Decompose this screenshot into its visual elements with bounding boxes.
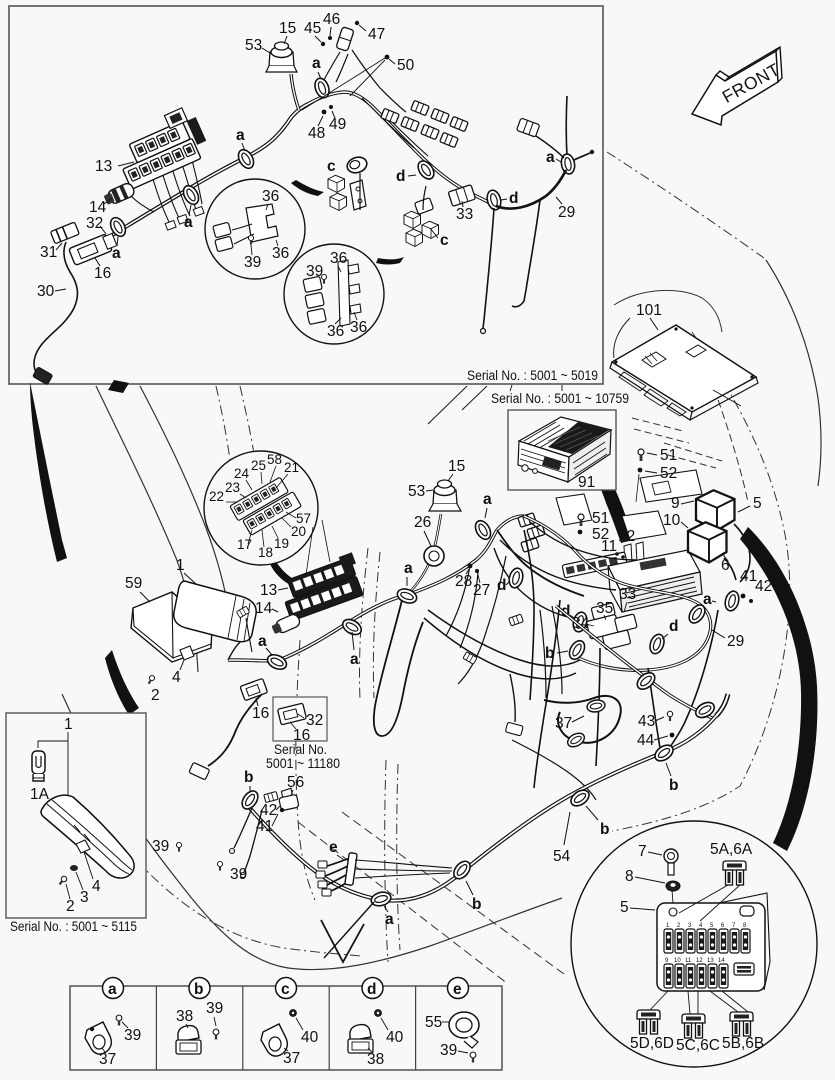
svg-text:b: b — [472, 896, 481, 913]
svg-text:50: 50 — [397, 57, 415, 74]
svg-text:5A,6A: 5A,6A — [710, 841, 753, 858]
svg-text:101: 101 — [636, 302, 662, 319]
svg-text:c: c — [327, 158, 336, 175]
svg-text:42: 42 — [755, 578, 772, 595]
svg-text:30: 30 — [37, 283, 55, 300]
svg-text:e: e — [329, 839, 338, 856]
svg-text:18: 18 — [258, 545, 273, 560]
svg-text:8: 8 — [625, 868, 634, 885]
svg-text:21: 21 — [284, 460, 299, 475]
svg-text:b: b — [669, 777, 678, 794]
svg-text:a: a — [385, 911, 394, 928]
svg-text:29: 29 — [558, 204, 575, 221]
svg-text:54: 54 — [553, 848, 571, 865]
svg-text:a: a — [112, 245, 121, 262]
svg-text:38: 38 — [367, 1051, 384, 1068]
svg-text:19: 19 — [274, 536, 289, 551]
svg-text:a: a — [236, 127, 245, 144]
svg-text:a: a — [546, 149, 555, 166]
svg-text:b: b — [600, 821, 609, 838]
svg-text:36: 36 — [262, 188, 279, 205]
svg-text:48: 48 — [308, 125, 325, 142]
svg-text:24: 24 — [234, 466, 250, 481]
svg-text:13: 13 — [260, 582, 277, 599]
svg-text:Serial No. : 5001 ~ 5115: Serial No. : 5001 ~ 5115 — [10, 919, 137, 934]
svg-text:15: 15 — [448, 458, 465, 475]
svg-text:d: d — [396, 168, 405, 185]
svg-text:14: 14 — [718, 958, 725, 964]
svg-text:b: b — [194, 981, 203, 998]
svg-text:38: 38 — [176, 1008, 193, 1025]
svg-text:a: a — [404, 560, 413, 577]
svg-text:b: b — [545, 645, 554, 662]
svg-text:c: c — [281, 981, 290, 998]
svg-text:7: 7 — [638, 843, 647, 860]
svg-text:c: c — [440, 232, 449, 249]
svg-text:13: 13 — [95, 158, 112, 175]
svg-text:56: 56 — [287, 774, 304, 791]
svg-text:32: 32 — [86, 215, 103, 232]
svg-text:20: 20 — [291, 524, 306, 539]
svg-text:44: 44 — [637, 732, 655, 749]
svg-text:36: 36 — [327, 323, 344, 340]
svg-text:45: 45 — [304, 20, 321, 37]
svg-text:5: 5 — [753, 495, 762, 512]
svg-text:39: 39 — [124, 1027, 141, 1044]
svg-text:1A: 1A — [30, 786, 50, 803]
svg-text:43: 43 — [638, 713, 655, 730]
svg-text:40: 40 — [301, 1029, 319, 1046]
svg-text:a: a — [258, 633, 267, 650]
svg-text:39: 39 — [306, 263, 323, 280]
svg-text:11: 11 — [601, 538, 617, 555]
svg-text:3: 3 — [80, 889, 89, 906]
svg-text:59: 59 — [125, 575, 142, 592]
svg-text:10: 10 — [663, 512, 681, 529]
svg-text:a: a — [108, 981, 117, 998]
svg-text:31: 31 — [40, 244, 57, 261]
svg-text:14: 14 — [255, 600, 273, 617]
svg-text:37: 37 — [555, 715, 572, 732]
svg-text:5D,6D: 5D,6D — [630, 1035, 674, 1052]
svg-text:17: 17 — [237, 537, 252, 552]
svg-text:16: 16 — [94, 265, 111, 282]
svg-text:35: 35 — [596, 600, 613, 617]
svg-text:11: 11 — [685, 958, 692, 964]
svg-text:Serial No. : 5001 ~ 10759: Serial No. : 5001 ~ 10759 — [491, 391, 629, 406]
svg-text:12: 12 — [696, 958, 703, 964]
svg-text:36: 36 — [272, 245, 289, 262]
svg-text:2: 2 — [151, 687, 160, 704]
svg-text:33: 33 — [619, 586, 636, 603]
svg-text:d: d — [669, 618, 678, 635]
svg-text:53: 53 — [245, 37, 262, 54]
svg-text:22: 22 — [209, 489, 224, 504]
svg-text:b: b — [244, 769, 253, 786]
svg-text:47: 47 — [368, 26, 385, 43]
svg-text:26: 26 — [414, 514, 431, 531]
svg-text:39: 39 — [230, 866, 247, 883]
svg-text:1: 1 — [176, 557, 185, 574]
svg-text:52: 52 — [660, 465, 677, 482]
svg-text:a: a — [703, 591, 712, 608]
svg-text:37: 37 — [283, 1050, 300, 1067]
svg-text:Serial No. : 5001 ~ 5019: Serial No. : 5001 ~ 5019 — [467, 368, 598, 383]
svg-text:9: 9 — [671, 495, 680, 512]
svg-text:14: 14 — [89, 199, 107, 216]
svg-text:58: 58 — [267, 452, 282, 467]
svg-text:53: 53 — [408, 483, 425, 500]
svg-text:4: 4 — [92, 878, 101, 895]
svg-text:36: 36 — [350, 319, 367, 336]
svg-text:23: 23 — [225, 480, 240, 495]
svg-text:51: 51 — [592, 510, 609, 527]
svg-text:4: 4 — [172, 669, 181, 686]
svg-text:a: a — [312, 55, 321, 72]
svg-text:d: d — [367, 981, 376, 998]
svg-text:49: 49 — [329, 116, 346, 133]
svg-text:29: 29 — [727, 633, 744, 650]
svg-text:15: 15 — [279, 20, 296, 37]
svg-text:40: 40 — [386, 1029, 404, 1046]
svg-text:5B,6B: 5B,6B — [722, 1035, 764, 1052]
svg-text:42: 42 — [260, 802, 277, 819]
svg-text:39: 39 — [206, 1000, 223, 1017]
svg-text:5: 5 — [620, 899, 629, 916]
svg-text:13: 13 — [707, 958, 714, 964]
svg-text:a: a — [483, 491, 492, 508]
svg-text:91: 91 — [578, 474, 595, 491]
svg-text:39: 39 — [440, 1042, 457, 1059]
svg-text:a: a — [350, 651, 359, 668]
svg-text:55: 55 — [425, 1014, 442, 1031]
svg-text:1: 1 — [64, 716, 73, 733]
svg-text:25: 25 — [251, 458, 266, 473]
svg-text:36: 36 — [330, 250, 347, 267]
svg-text:33: 33 — [456, 206, 473, 223]
svg-text:5001 ~ 11180: 5001 ~ 11180 — [266, 756, 340, 771]
svg-text:e: e — [453, 981, 462, 998]
svg-text:41: 41 — [256, 818, 273, 835]
svg-text:37: 37 — [99, 1051, 116, 1068]
svg-text:28: 28 — [455, 573, 472, 590]
svg-text:39: 39 — [244, 254, 261, 271]
svg-text:2: 2 — [66, 898, 75, 915]
svg-text:a: a — [184, 214, 193, 231]
svg-text:46: 46 — [323, 11, 340, 28]
svg-text:12: 12 — [618, 528, 635, 545]
svg-text:10: 10 — [674, 958, 681, 964]
svg-text:d: d — [509, 190, 518, 207]
svg-text:51: 51 — [660, 447, 677, 464]
svg-text:5C,6C: 5C,6C — [676, 1037, 720, 1054]
svg-text:39: 39 — [152, 838, 169, 855]
svg-text:d: d — [497, 577, 506, 594]
svg-text:Serial No.: Serial No. — [274, 742, 327, 757]
svg-text:16: 16 — [252, 705, 269, 722]
